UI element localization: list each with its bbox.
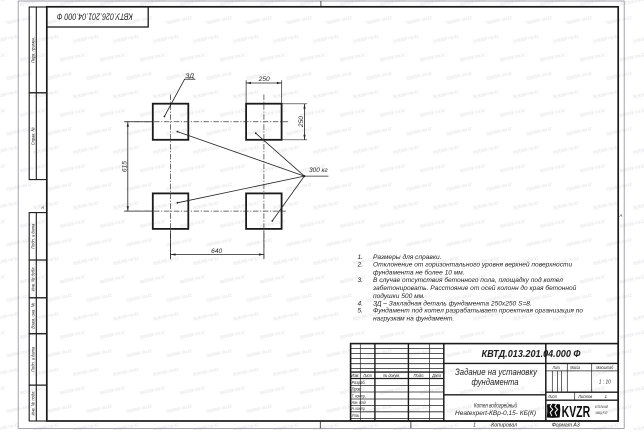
svg-text:КВТУ.026.201.04.000 Ф: КВТУ.026.201.04.000 Ф [56, 11, 132, 22]
svg-text:3.: 3. [358, 277, 364, 284]
svg-text:250: 250 [298, 116, 305, 129]
svg-text:Взам. инв. №: Взам. инв. № [30, 303, 36, 329]
svg-text:250: 250 [258, 76, 271, 83]
svg-text:ЗД: ЗД [185, 73, 194, 80]
svg-text:4.: 4. [358, 300, 364, 307]
svg-text:Масса: Масса [570, 365, 580, 370]
svg-text:Перв. примен.: Перв. примен. [30, 37, 36, 63]
svg-text:2.: 2. [357, 262, 364, 269]
svg-text:Задание на установку: Задание на установку [455, 367, 538, 377]
svg-text:Отклонение от горизонтального: Отклонение от горизонтального уровня вер… [373, 261, 572, 269]
svg-text:А: А [40, 205, 44, 210]
svg-text:Подп. и дата: Подп. и дата [30, 224, 36, 249]
svg-text:Масштаб: Масштаб [596, 365, 613, 370]
svg-text:Лист: Лист [362, 373, 372, 378]
svg-text:№ докум.: № докум. [383, 373, 400, 378]
svg-text:KVZR: KVZR [562, 404, 591, 421]
svg-text:ЗД – Закладная деталь фундамен: ЗД – Закладная деталь фундамента 250х250… [373, 299, 532, 307]
svg-text:В случае отсутствия бетонного: В случае отсутствия бетонного пола, площ… [373, 276, 563, 284]
svg-text:фундамента: фундамента [472, 377, 519, 387]
svg-text:Инв. № дубл.: Инв. № дубл. [30, 266, 36, 291]
svg-text:забетонировать. Расстояние от: забетонировать. Расстояние от осей колон… [372, 284, 577, 292]
svg-text:КВТД.013.201.04.000 Ф: КВТД.013.201.04.000 Ф [482, 348, 582, 360]
svg-text:1 : 10: 1 : 10 [599, 380, 611, 386]
svg-text:Справ. №: Справ. № [30, 127, 36, 145]
svg-text:Нач. отд: Нач. отд [352, 400, 366, 405]
svg-text:5.: 5. [358, 308, 364, 315]
svg-text:1.: 1. [358, 254, 364, 261]
svg-text:Утв.: Утв. [352, 413, 360, 418]
svg-text:Н. контр.: Н. контр. [352, 406, 366, 411]
svg-text:1: 1 [605, 394, 608, 399]
svg-text:640: 640 [211, 248, 223, 255]
svg-text:Изм.: Изм. [351, 373, 359, 378]
svg-text:Инв. № подл.: Инв. № подл. [30, 391, 36, 416]
svg-text:КОТЕЛЬНЫЙ: КОТЕЛЬНЫЙ [595, 405, 608, 409]
svg-text:1: 1 [473, 423, 476, 429]
svg-text:Фундамент под котел разрабатыв: Фундамент под котел разрабатывает проект… [373, 307, 583, 315]
svg-text:Формат А3: Формат А3 [552, 423, 580, 429]
svg-text:Heatexpert-КВр-0,15- КБ(К): Heatexpert-КВр-0,15- КБ(К) [455, 410, 536, 417]
svg-text:Пров.: Пров. [352, 386, 362, 391]
svg-text:ЗАВОД РЭП: ЗАВОД РЭП [595, 411, 607, 415]
svg-text:Лист: Лист [547, 394, 557, 399]
svg-text:300 кг: 300 кг [309, 167, 328, 174]
svg-text:Размеры для справки.: Размеры для справки. [373, 253, 442, 261]
svg-text:А: А [619, 213, 623, 218]
svg-text:Разраб.: Разраб. [352, 380, 366, 385]
svg-text:Котел водогрейный: Котел водогрейный [474, 402, 517, 410]
svg-text:615: 615 [121, 161, 128, 173]
svg-text:фундамента не более 10 мм.: фундамента не более 10 мм. [373, 268, 465, 276]
svg-text:Лит.: Лит. [552, 365, 561, 370]
svg-text:Т. контр.: Т. контр. [352, 393, 366, 398]
svg-text:подушки 500 мм.: подушки 500 мм. [373, 292, 425, 300]
svg-text:нагрузкам на фундамент.: нагрузкам на фундамент. [373, 314, 454, 322]
svg-text:Копировал: Копировал [491, 423, 517, 429]
svg-text:Листов: Листов [577, 394, 592, 399]
svg-text:Дата: Дата [431, 373, 441, 378]
svg-text:Подп.: Подп. [414, 373, 425, 378]
svg-text:Подп. и дата: Подп. и дата [30, 347, 36, 372]
